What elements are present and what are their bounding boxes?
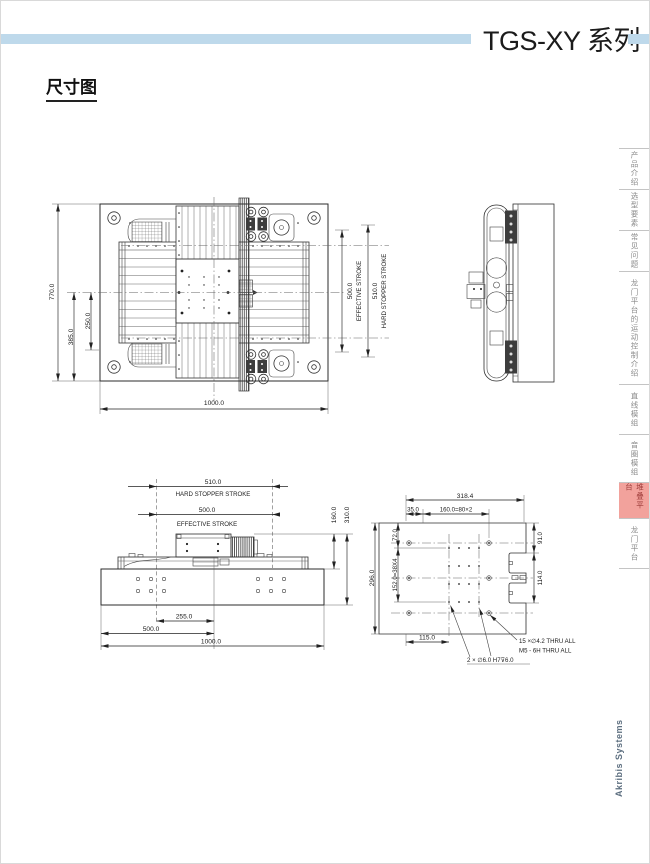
brand-vertical-text: Akribis Systems xyxy=(614,719,624,797)
dim-label-hard-stopper-value: 510.0 xyxy=(372,282,379,299)
side-rail-assembly xyxy=(467,205,509,381)
dim-label-500b: 500.0 xyxy=(143,626,160,633)
motor-assembly-bottom xyxy=(246,350,294,384)
note-thru-holes-line1: 15 ×∅4.2 THRU ALL xyxy=(519,638,576,645)
note-dowel-holes: 2 × ∅6.0 H7⊽6.0 xyxy=(467,657,514,664)
dim-label-114: 114.0 xyxy=(537,570,544,585)
cable xyxy=(124,557,171,567)
sidebar-tab-stacked-stage-active[interactable]: 堆叠平台 xyxy=(619,482,650,518)
sidebar-tab-gantry-stage[interactable]: 龙门平台 xyxy=(619,518,650,569)
dim-label-hard-stopper: HARD STOPPER STROKE xyxy=(381,254,388,329)
sidebar-tab-gantry-motion-control[interactable]: 龙门平台的运动控制介绍 xyxy=(619,271,650,384)
dim-label-770: 770.0 xyxy=(49,283,56,300)
dim-label-255: 255.0 xyxy=(176,614,193,621)
dim-label-510: 510.0 xyxy=(205,479,222,486)
dim-label-310: 310.0 xyxy=(344,506,351,523)
sidebar-tab-voice-coil-module[interactable]: 音圈模组 xyxy=(619,434,650,482)
plan-view-drawing: 770.0 385.0 250.0 1000.0 500.0 EFFECTIVE… xyxy=(41,191,393,423)
front-stroke-dimensions: 510.0 HARD STOPPER STROKE 500.0 EFFECTIV… xyxy=(128,479,288,624)
dim-label-115: 115.0 xyxy=(419,635,435,642)
header-accent-bar-right xyxy=(628,34,650,44)
dim-label-296: 296.0 xyxy=(369,569,376,586)
front-base-block xyxy=(101,569,324,605)
header-accent-bar-left xyxy=(1,34,471,44)
dim-label-160: 160.0 xyxy=(331,506,338,523)
side-view-drawing xyxy=(456,196,576,388)
dim-label-250: 250.0 xyxy=(85,312,92,329)
plate-detail-drawing: 318.4 35.0 160.0=80×2 296.0 72.0 152.0=3… xyxy=(363,479,611,675)
front-table-plate xyxy=(118,554,308,570)
sidebar-tab-linear-module[interactable]: 直线模组 xyxy=(619,384,650,434)
dim-label-effective-stroke: EFFECTIVE STROKE xyxy=(356,261,363,321)
plate-dimensions: 318.4 35.0 160.0=80×2 296.0 72.0 152.0=3… xyxy=(369,493,544,646)
dim-label-1000b: 1000.0 xyxy=(201,639,222,646)
dim-label-effective-stroke-value: 500.0 xyxy=(347,282,354,299)
dim-label-35: 35.0 xyxy=(407,507,419,514)
carriage-plate xyxy=(176,259,239,323)
front-motor-hatch xyxy=(231,537,254,557)
sidebar-tab-product-intro[interactable]: 产品介绍 xyxy=(619,148,650,189)
catalog-page: TGS-XY 系列 尺寸图 xyxy=(0,0,650,864)
dim-label-1000: 1000.0 xyxy=(204,400,225,407)
dim-label-152: 152.0=38X4 xyxy=(392,558,399,592)
plate-holes xyxy=(391,534,533,638)
dim-label-72: 72.0 xyxy=(392,528,399,540)
dim-label-318: 318.4 xyxy=(457,493,474,500)
motor-assembly-top xyxy=(246,207,294,241)
dim-label-500: 500.0 xyxy=(199,507,216,514)
section-title: 尺寸图 xyxy=(46,73,97,102)
note-thru-holes-line2: M5 - 6H THRU ALL xyxy=(519,648,572,655)
sidebar-tab-selection-factors[interactable]: 选型要素 xyxy=(619,189,650,230)
page-title: TGS-XY 系列 xyxy=(483,19,640,58)
table-plate-outline xyxy=(379,523,526,634)
side-motor-mounts xyxy=(505,211,517,374)
dim-label-160x2: 160.0=80×2 xyxy=(440,507,473,514)
dim-label-hard-stopper-stroke: HARD STOPPER STROKE xyxy=(176,491,251,498)
dim-label-385: 385.0 xyxy=(68,328,75,345)
dim-label-effective-stroke: EFFECTIVE STROKE xyxy=(177,521,237,528)
plate-hole-notes: 15 ×∅4.2 THRU ALL M5 - 6H THRU ALL 2 × ∅… xyxy=(451,606,577,665)
dim-label-91: 91.0 xyxy=(537,531,544,543)
front-carriage xyxy=(176,534,258,557)
front-view-drawing: 510.0 HARD STOPPER STROKE 500.0 EFFECTIV… xyxy=(61,469,373,659)
sidebar-tab-faq[interactable]: 常见问题 xyxy=(619,230,650,271)
